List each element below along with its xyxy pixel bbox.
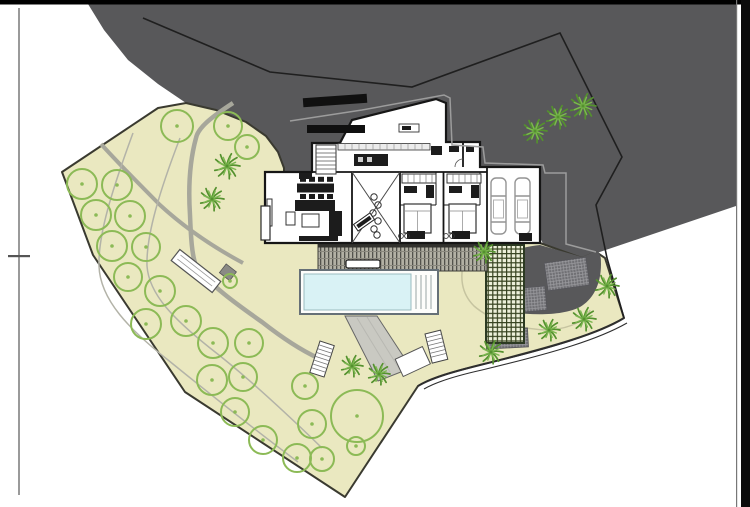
upper-room-bench [399,124,419,132]
coffee-table [302,214,319,227]
swimming-pool [300,270,438,314]
armchair [286,212,295,225]
frame-top-border [0,0,750,5]
sun-lounger [346,260,380,268]
paver-patch [544,257,589,291]
dining-table [297,184,334,193]
sofa [295,200,335,211]
roof-beam-lower [307,125,365,133]
site-plan-sheet [0,0,750,507]
pergola-trellis [486,245,524,343]
site-plan-drawing [0,0,750,507]
interior-stair [316,145,336,174]
frame-right-thin-line [736,0,737,507]
wood-deck [318,244,487,271]
desk-2 [452,231,470,239]
garage-storage [519,233,532,241]
tv-bench [299,236,338,241]
frame-left-line [18,8,20,495]
closet-1 [402,174,436,183]
closet-2 [447,174,481,183]
exterior-planter [261,206,270,240]
pool-water [304,274,411,310]
fridge [431,146,442,155]
frame-left-tick [8,255,30,257]
desk-1 [407,231,425,239]
frame-right-border [741,0,750,507]
